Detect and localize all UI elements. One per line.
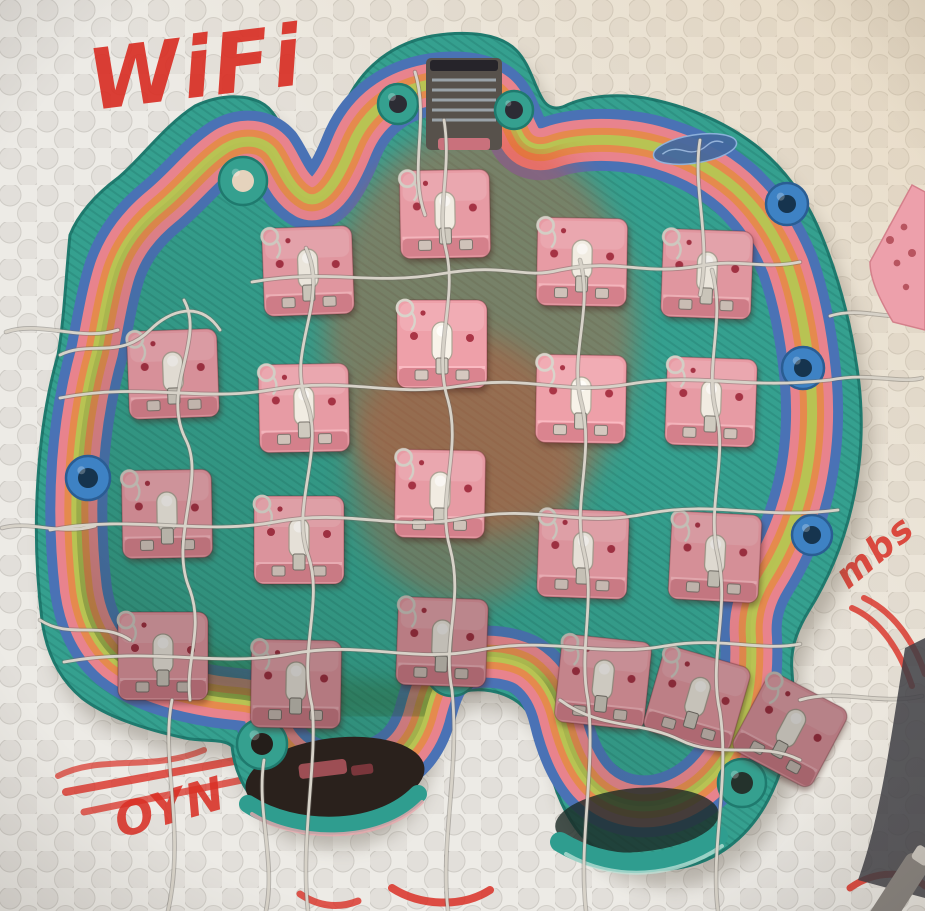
photo-canvas: WiFi 1 OYN mbs xyxy=(0,0,925,911)
photo-vignette xyxy=(0,0,925,911)
